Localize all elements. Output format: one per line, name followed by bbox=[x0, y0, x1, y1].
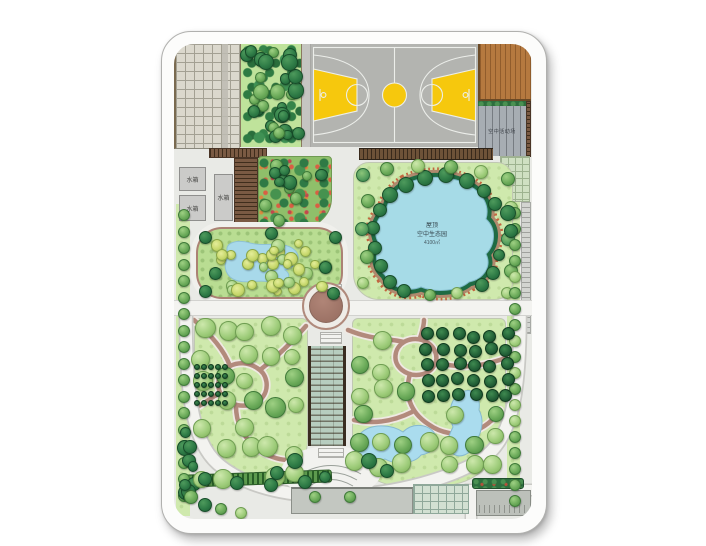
plan-linework bbox=[174, 44, 532, 519]
corridor-south-steps bbox=[318, 448, 344, 458]
rooftop-lake bbox=[375, 177, 493, 290]
grid-paving-south bbox=[413, 484, 469, 514]
south-pond bbox=[353, 425, 437, 462]
south-building bbox=[291, 487, 413, 514]
wetland-pond bbox=[225, 241, 298, 282]
southeast-structure bbox=[476, 490, 531, 516]
east-pond bbox=[448, 391, 482, 456]
site-plan: 空中活动场 水箱 水箱 水箱 bbox=[174, 44, 532, 519]
plan-card: 空中活动场 水箱 水箱 水箱 bbox=[161, 31, 547, 534]
southeast-hedge bbox=[472, 478, 524, 489]
main-promenade bbox=[174, 300, 532, 316]
plaza-south-steps bbox=[320, 332, 342, 344]
pergola-corridor bbox=[308, 346, 346, 446]
structure-hatch bbox=[479, 505, 528, 513]
central-plaza bbox=[309, 289, 343, 323]
